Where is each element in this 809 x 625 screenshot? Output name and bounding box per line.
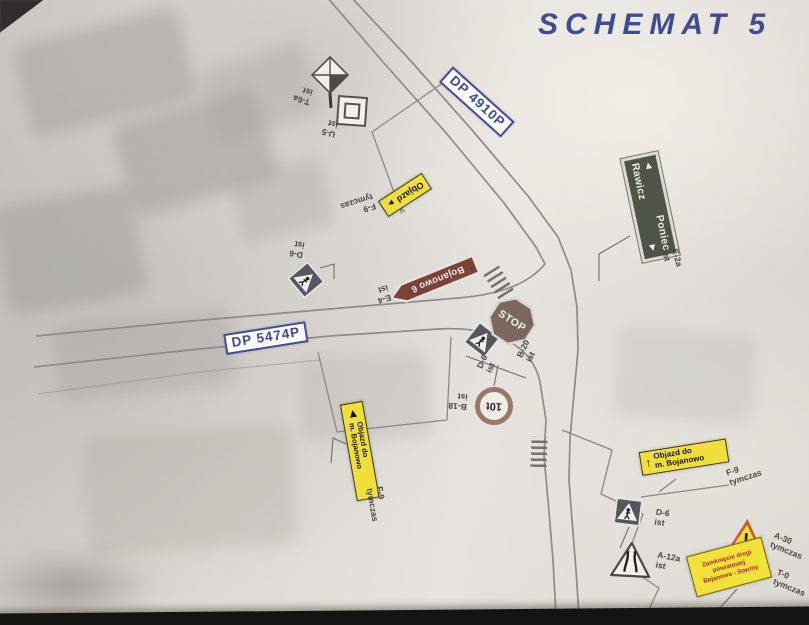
road-network-drawing — [0, 0, 809, 625]
detour-text: Objazd do m. Bojanowo — [653, 445, 705, 470]
arrow-right-icon: ► — [645, 242, 660, 255]
weight-limit-value: 10t — [486, 400, 503, 413]
crosswalk-hatch — [530, 437, 547, 468]
pedestrian-crossing-sign-icon — [613, 497, 643, 527]
detour-text: Objazd do m. Bojanowo — [347, 421, 371, 470]
arrow-left-icon: ◄ — [345, 406, 361, 420]
closure-text: Zamknięcie drogi powiatowej Bojanowo - S… — [699, 548, 760, 585]
sign-code-label: D-6 ist — [654, 508, 670, 529]
stop-text: STOP — [496, 308, 528, 335]
traffic-scheme-photo: SCHEMAT 5 DP 4910P DP 5474P T-6a ist U-5… — [0, 0, 809, 625]
arrow-left-icon: ◄ — [640, 159, 655, 172]
sign-code-label: A-12a ist — [655, 551, 681, 574]
page-title: SCHEMAT 5 — [538, 8, 772, 42]
road-narrows-sign-icon — [609, 540, 653, 580]
arrow-up-icon: ↑ — [644, 455, 652, 470]
arrow-right-icon: ► — [385, 197, 398, 210]
photo-shadow — [0, 551, 160, 621]
square-marker-icon — [336, 95, 368, 127]
sign-code-label: B-18 ist — [448, 391, 468, 412]
